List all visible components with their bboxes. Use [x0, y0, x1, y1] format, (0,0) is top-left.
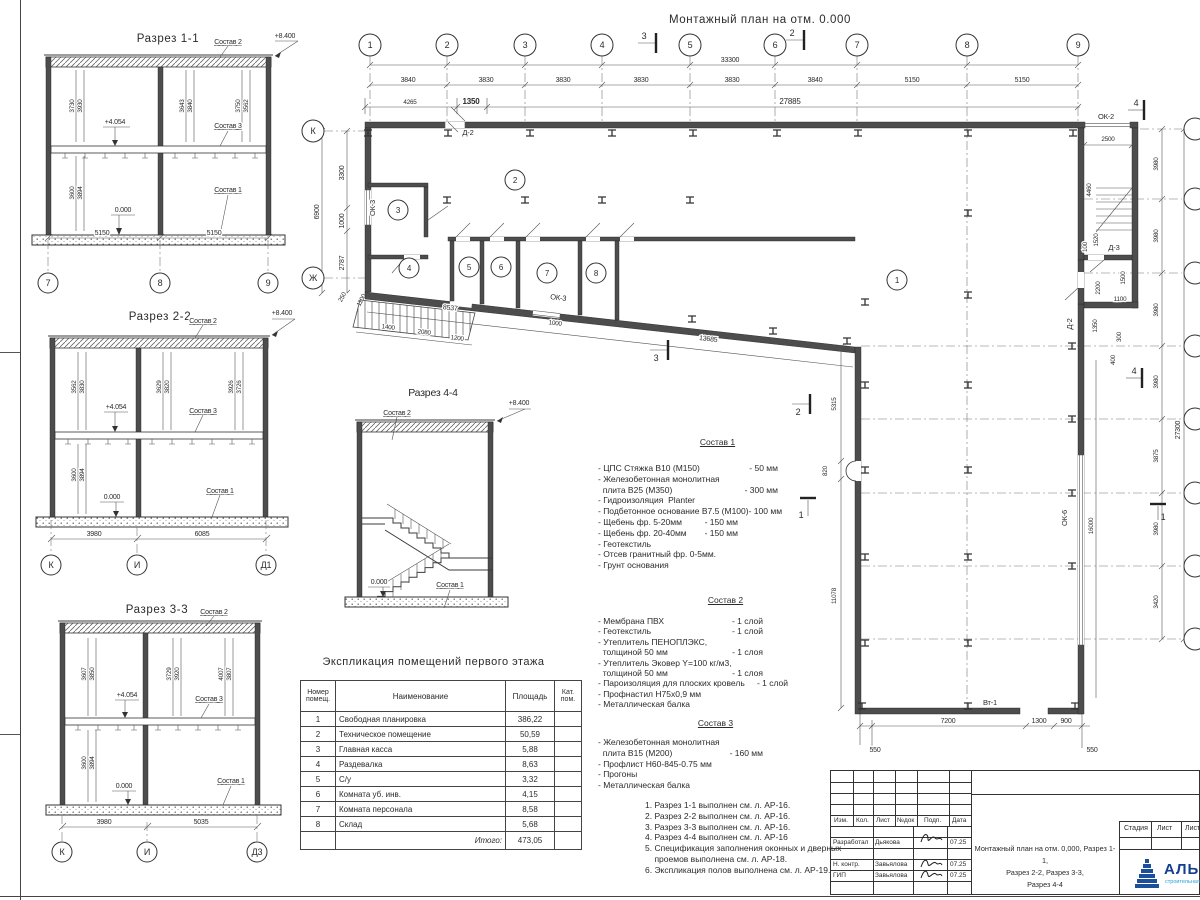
- layer-item: - Подбетонное основание В7.5 (М100): [598, 506, 749, 517]
- dim-label: 5150: [1015, 77, 1030, 84]
- section-marker-4: 4: [1126, 366, 1142, 388]
- layer-value: - 300 мм: [745, 485, 778, 496]
- layer-item: толщиной 50 мм: [598, 647, 668, 657]
- dim-label: 5035: [194, 819, 209, 826]
- opening-label: Д-3: [1108, 243, 1119, 252]
- dim-label: 1350: [463, 97, 481, 106]
- dim-label: 7200: [941, 718, 956, 725]
- signature: [919, 868, 943, 881]
- tb-col: Лист: [876, 817, 890, 824]
- axis-bubble: Д3: [252, 847, 263, 857]
- layer-item: толщиной 50 мм: [598, 668, 668, 678]
- layer-ref-label: Состав 1: [206, 488, 234, 495]
- svg-text:2: 2: [796, 407, 801, 417]
- layer-ref-label: Состав 1: [214, 187, 242, 194]
- cell-num: 8: [301, 817, 336, 832]
- dim-label: 6900: [314, 204, 321, 219]
- fold-mark: [0, 352, 20, 353]
- opening-label: ОК-3: [550, 292, 567, 303]
- svg-text:4: 4: [1132, 366, 1137, 376]
- layer-value: - 100 мм: [749, 506, 782, 517]
- dim-label: 3980: [1153, 229, 1160, 243]
- dim-label: 3830: [725, 77, 740, 84]
- section-title: Разрез 2-2: [129, 311, 191, 323]
- dim-label: 3730: [69, 99, 76, 113]
- cell-name: Главная касса: [336, 742, 506, 757]
- axis-bubble: 7: [46, 278, 51, 288]
- dim-label: 550: [869, 747, 880, 754]
- dim-label: 3830: [79, 380, 86, 394]
- dim-label: 3920: [174, 667, 181, 681]
- layer-value: - 150 мм: [705, 517, 738, 528]
- level-label: 0.000: [104, 494, 121, 501]
- opening-label: ОК-2: [1098, 112, 1114, 121]
- section-marker-2: 2: [786, 28, 804, 50]
- dim-label: 3807: [226, 667, 233, 681]
- tb-role: Н. контр.: [833, 861, 860, 868]
- dim-label: 3600: [71, 468, 78, 482]
- layer-item: - Отсев гранитный фр. 0-5мм.: [598, 549, 716, 560]
- signature: [919, 830, 943, 846]
- svg-text:3: 3: [642, 31, 647, 41]
- dim-label: 4460: [1086, 183, 1093, 197]
- layer-item: плита В15 (М200): [598, 748, 672, 759]
- dim-label: 100: [1082, 241, 1089, 252]
- section-title: Разрез 1-1: [137, 33, 199, 45]
- sostav3-title: Состав 3: [658, 718, 773, 729]
- opening-label: ОК-3: [368, 200, 377, 216]
- dim-label: 3830: [634, 77, 649, 84]
- cell-cat: [555, 742, 582, 757]
- cell-num: 1: [301, 712, 336, 727]
- cell-area: 4,15: [506, 787, 555, 802]
- layer-item: - Утеплитель Эковер Y=100 кг/м3,: [598, 658, 732, 668]
- axis-bubbles-left: К Ж: [302, 120, 324, 289]
- dim-label: 3729: [166, 667, 173, 681]
- dim-label: 3980: [97, 819, 112, 826]
- dim-label: 3850: [89, 667, 96, 681]
- notes-list: 1. Разрез 1-1 выполнен см. л. АР-16. 2. …: [645, 800, 841, 876]
- dim-label: 3629: [156, 380, 163, 394]
- layer-item: - Железобетонная монолитная: [598, 474, 720, 485]
- section-1-1-drawing: Разрез 1-1 +8.400 3730 3930 3643 3840 37…: [30, 28, 320, 296]
- doc-title-line: Разрез 4-4: [973, 879, 1117, 891]
- dim-label: 5150: [207, 230, 222, 237]
- dim-label: 820: [822, 465, 829, 476]
- elevation-label: +8.400: [272, 310, 293, 317]
- dim-label: 5315: [831, 397, 838, 411]
- dim-label: 900: [1060, 718, 1071, 725]
- elevation-label: +8.400: [275, 33, 296, 40]
- tb-date: 07.25: [950, 861, 966, 868]
- axis-bubble: И: [144, 847, 150, 857]
- layer-value: - 1 слоя: [732, 647, 763, 657]
- tb-col: Подп.: [924, 817, 941, 824]
- dim-label: 3926: [228, 380, 235, 394]
- layer-value: - 1 слой: [732, 616, 763, 626]
- tb-name: Дьякова: [875, 839, 900, 846]
- layer-item: - Профлист Н60-845-0.75 мм: [598, 759, 712, 770]
- layer-item: - ЦПС Стяжка В10 (М150): [598, 463, 700, 474]
- cell-area: 386,22: [506, 712, 555, 727]
- layer-item: - Железобетонная монолитная: [598, 737, 720, 748]
- section-marker-1: 1: [1150, 504, 1166, 522]
- dim-label: 400: [1110, 354, 1117, 365]
- layer-item: - Пароизоляция для плоских кровель: [598, 678, 745, 688]
- dim-label: 1300: [1032, 718, 1047, 725]
- note-line: 5. Спецификация заполнения оконных и две…: [645, 843, 841, 854]
- layer-item: - Мембрана ПВХ: [598, 616, 664, 626]
- cell-name: Раздевалка: [336, 757, 506, 772]
- cell-num: 4: [301, 757, 336, 772]
- col-header: Наименование: [336, 681, 506, 712]
- dim-label: 3726: [236, 380, 243, 394]
- dim-label: 3894: [89, 756, 96, 770]
- note-line: 6. Экспликация полов выполнена см. л. АР…: [645, 865, 841, 876]
- cell-cat: [555, 787, 582, 802]
- layer-ref-label: Состав 2: [200, 609, 228, 616]
- dim-label: 3840: [808, 77, 823, 84]
- layer-item: - Геотекстиль: [598, 539, 651, 550]
- dim-label: 3980: [1153, 375, 1160, 389]
- opening-label: Вт-1: [983, 698, 997, 707]
- sostav2-title: Состав 2: [668, 595, 783, 606]
- layer-item: - Щебень фр. 20-40мм: [598, 528, 687, 539]
- axis-bubble: Д1: [261, 560, 272, 570]
- dim-label: 3600: [81, 756, 88, 770]
- doc-title-line: Монтажный план на отм. 0,000, Разрез 1-1…: [973, 843, 1117, 867]
- dim-label: 5150: [95, 230, 110, 237]
- svg-text:6: 6: [773, 40, 778, 50]
- doc-title: Монтажный план на отм. 0,000, Разрез 1-1…: [973, 843, 1117, 891]
- frame-left-line: [20, 0, 21, 900]
- svg-text:2: 2: [445, 40, 450, 50]
- layer-ref-label: Состав 3: [214, 123, 242, 130]
- cell-num: 2: [301, 727, 336, 742]
- dim-label: 1100: [1114, 296, 1127, 303]
- cell-cat: [555, 832, 582, 850]
- cell-num: 3: [301, 742, 336, 757]
- dim-label: 27300: [1175, 420, 1182, 439]
- dim-label: 3840: [401, 77, 416, 84]
- layer-item: - Грунт основания: [598, 560, 669, 571]
- cell-empty: [301, 832, 336, 850]
- layer-item: - Щебень фр. 5-20мм: [598, 517, 682, 528]
- level-label: +4.054: [117, 692, 138, 699]
- dim-label: 3830: [479, 77, 494, 84]
- section-marker-2: 2: [792, 394, 810, 417]
- doc-title-line: Разрез 2-2, Разрез 3-3,: [973, 867, 1117, 879]
- tb-col: Кол.: [856, 817, 869, 824]
- dim-label: 4265: [403, 99, 417, 106]
- room-numbers: 1 2 3 4 5 6 7 8: [388, 170, 907, 290]
- cell-cat: [555, 727, 582, 742]
- drawing-sheet: Разрез 1-1 +8.400 3730 3930 3643 3840 37…: [0, 0, 1200, 900]
- section-marker-1: 1: [799, 498, 816, 520]
- layer-item: - Утеплитель ПЕНОПЛЭКС,: [598, 637, 707, 647]
- total-value: 473,05: [506, 832, 555, 850]
- layer-value: - 1 слоя: [732, 668, 763, 678]
- cell-num: 6: [301, 787, 336, 802]
- company-logo-subtext: строительная компания: [1165, 879, 1200, 885]
- level-label: +4.054: [106, 404, 127, 411]
- cell-area: 8,58: [506, 802, 555, 817]
- layer-item: - Гидроизоляция Planter: [598, 495, 695, 506]
- section-3-3-drawing: Разрез 3-3 3607 3850 3729 3920 4007 3807…: [30, 596, 320, 881]
- cell-name: Комната персонала: [336, 802, 506, 817]
- sostav1-title: Состав 1: [660, 437, 775, 448]
- svg-text:4: 4: [1134, 98, 1139, 108]
- layer-value: - 150 мм: [705, 528, 738, 539]
- note-line: 4. Разрез 4-4 выполнен см. л. АР-16: [645, 832, 841, 843]
- layer-item: - Прогоны: [598, 769, 637, 780]
- opening-label: Д-2: [462, 128, 473, 137]
- axis-bubbles-top: 1 2 3 4 5 6 7 8 9: [359, 34, 1089, 56]
- dim-label: 3300: [339, 165, 346, 180]
- total-label: Итого:: [336, 832, 506, 850]
- cell-num: 7: [301, 802, 336, 817]
- title-block: Изм. Кол. Лист №док Подп. Дата Разработа…: [830, 770, 1200, 895]
- cell-cat: [555, 802, 582, 817]
- dim-label: 3980: [1153, 303, 1160, 317]
- note-line: проемов выполнена см. л. АР-18.: [645, 854, 841, 865]
- dim-label: 3894: [77, 186, 84, 200]
- section-2-2-drawing: Разрез 2-2 +8.400 3562 3830 3629 3820 39…: [30, 302, 320, 587]
- cell-area: 8,63: [506, 757, 555, 772]
- cell-area: 5,88: [506, 742, 555, 757]
- cell-area: 3,32: [506, 772, 555, 787]
- svg-text:8: 8: [965, 40, 970, 50]
- layer-item: - Металлическая балка: [598, 699, 690, 709]
- dim-label: 1500: [1120, 271, 1127, 285]
- dim-label: 13685: [699, 335, 718, 344]
- dim-label: 2500: [1101, 136, 1115, 143]
- svg-text:5: 5: [688, 40, 693, 50]
- tb-role: Разработал: [833, 839, 868, 846]
- note-line: 3. Разрез 3-3 выполнен см. л. АР-16.: [645, 822, 841, 833]
- layer-value: - 50 мм: [749, 463, 778, 474]
- tb-role: ГИП: [833, 872, 846, 879]
- dim-label: 33300: [721, 57, 740, 64]
- tb-col: Дата: [952, 817, 966, 824]
- section-title: Разрез 3-3: [126, 604, 188, 616]
- dim-label: 550: [1086, 747, 1097, 754]
- fold-mark: [0, 734, 20, 735]
- dim-label: 2200: [1095, 281, 1102, 295]
- cell-name: Свободная планировка: [336, 712, 506, 727]
- dim-label: 3894: [79, 468, 86, 482]
- layer-item: плита В25 (М350): [598, 485, 672, 496]
- svg-text:1: 1: [799, 510, 804, 520]
- layer-ref-label: Состав 3: [195, 696, 223, 703]
- axis-bubble: 9: [266, 278, 271, 288]
- frame-bottom-line: [0, 896, 1200, 897]
- company-logo-icon: [1134, 855, 1160, 889]
- level-label: 0.000: [115, 207, 132, 214]
- layer-ref-label: Состав 2: [189, 318, 217, 325]
- dim-label: 3820: [164, 380, 171, 394]
- cell-cat: [555, 712, 582, 727]
- note-line: 1. Разрез 1-1 выполнен см. л. АР-16.: [645, 800, 841, 811]
- dim-label: 16000: [1088, 517, 1095, 534]
- col-header: Кат. пом.: [555, 681, 582, 712]
- dim-label: 11078: [831, 587, 838, 604]
- level-label: +4.054: [105, 119, 126, 126]
- layer-ref-label: Состав 2: [214, 39, 242, 46]
- tb-col: Изм.: [834, 817, 848, 824]
- dim-label: 2080: [417, 328, 432, 337]
- tb-name: Завьялова: [875, 872, 907, 879]
- layer-value: - 1 слой: [757, 678, 788, 688]
- cell-name: Склад: [336, 817, 506, 832]
- dim-label: 1520: [1093, 233, 1100, 247]
- dim-label: 3562: [71, 380, 78, 394]
- cell-cat: [555, 757, 582, 772]
- cell-num: 5: [301, 772, 336, 787]
- svg-text:4: 4: [600, 40, 605, 50]
- svg-text:3: 3: [523, 40, 528, 50]
- svg-text:1: 1: [368, 40, 373, 50]
- dim-label: 3980: [1153, 522, 1160, 536]
- room-table-title: Экспликация помещений первого этажа: [300, 657, 567, 668]
- dim-label: 3830: [556, 77, 571, 84]
- col-header: Номер помещ.: [301, 681, 336, 712]
- layer-item: - Геотекстиль: [598, 626, 651, 636]
- dim-label: 3562: [243, 99, 250, 113]
- dim-label: 1200: [450, 334, 465, 343]
- dim-label: 1350: [1092, 319, 1099, 333]
- sostav1-list: - ЦПС Стяжка В10 (М150)- 50 мм - Железоб…: [598, 463, 778, 571]
- plan-title: Монтажный план на отм. 0.000: [669, 14, 851, 26]
- cell-name: Техническое помещение: [336, 727, 506, 742]
- axis-bubble: И: [134, 560, 140, 570]
- svg-text:1: 1: [1161, 512, 1166, 522]
- dim-label: 3643: [179, 99, 186, 113]
- dim-label: 300: [1116, 331, 1123, 342]
- tb-stage: Стадия: [1124, 825, 1148, 832]
- note-line: 2. Разрез 2-2 выполнен см. л. АР-16.: [645, 811, 841, 822]
- svg-text:9: 9: [1076, 40, 1081, 50]
- section-marker-4: 4: [1128, 98, 1144, 120]
- section-marker-3: 3: [650, 340, 668, 363]
- col-header: Площадь: [506, 681, 555, 712]
- dim-label: 3607: [81, 667, 88, 681]
- dim-label: 2787: [339, 255, 346, 270]
- tb-date: 07.25: [950, 839, 966, 846]
- section-marker-3: 3: [638, 31, 656, 53]
- svg-text:Ж: Ж: [309, 273, 318, 283]
- axis-bubble: 8: [158, 278, 163, 288]
- cell-cat: [555, 817, 582, 832]
- cell-name: Комната уб. инв.: [336, 787, 506, 802]
- tb-name: Завьялова: [875, 861, 907, 868]
- layer-value: - 1 слой: [732, 626, 763, 636]
- opening-label: Д-2: [1065, 318, 1074, 329]
- dim-label: 27885: [779, 97, 801, 106]
- tb-date: 07.25: [950, 872, 966, 879]
- cell-name: С/у: [336, 772, 506, 787]
- tb-col: №док: [897, 817, 914, 824]
- cell-cat: [555, 772, 582, 787]
- dim-label: 3875: [1153, 449, 1160, 463]
- layer-ref-label: Состав 3: [189, 408, 217, 415]
- layer-item: - Профнастил Н75х0,9 мм: [598, 689, 701, 699]
- dim-label: 4007: [218, 667, 225, 681]
- dim-label: 1000: [339, 213, 346, 228]
- layer-ref-label: Состав 1: [217, 778, 245, 785]
- tb-stage: Листов: [1185, 825, 1200, 832]
- company-logo-text: АЛЬЯНС: [1164, 861, 1200, 878]
- level-label: 0.000: [116, 783, 133, 790]
- dim-label: 3600: [69, 186, 76, 200]
- sostav2-list: - Мембрана ПВХ- 1 слой - Геотекстиль- 1 …: [598, 616, 788, 710]
- dim-label: 3980: [1153, 157, 1160, 171]
- axis-bubbles-right: [1184, 118, 1200, 650]
- dim-label: 3930: [77, 99, 84, 113]
- dim-label: 3840: [187, 99, 194, 113]
- svg-text:2: 2: [790, 28, 795, 38]
- cell-area: 5,68: [506, 817, 555, 832]
- dim-label: 5150: [905, 77, 920, 84]
- layer-item: - Металлическая балка: [598, 780, 690, 791]
- dim-label: 3750: [235, 99, 242, 113]
- tb-stage: Лист: [1157, 825, 1172, 832]
- dim-label: 1000: [548, 319, 563, 328]
- svg-text:3: 3: [654, 353, 659, 363]
- dim-label: 6085: [195, 531, 210, 538]
- opening-label: ОК-6: [1060, 510, 1069, 526]
- sostav3-list: - Железобетонная монолитная плита В15 (М…: [598, 737, 763, 791]
- layer-value: - 160 мм: [730, 748, 763, 759]
- cell-area: 50,59: [506, 727, 555, 742]
- dim-label: 3420: [1153, 595, 1160, 609]
- svg-text:7: 7: [855, 40, 860, 50]
- room-schedule-table: Номер помещ. Наименование Площадь Кат. п…: [300, 680, 582, 850]
- dim-label: 3980: [87, 531, 102, 538]
